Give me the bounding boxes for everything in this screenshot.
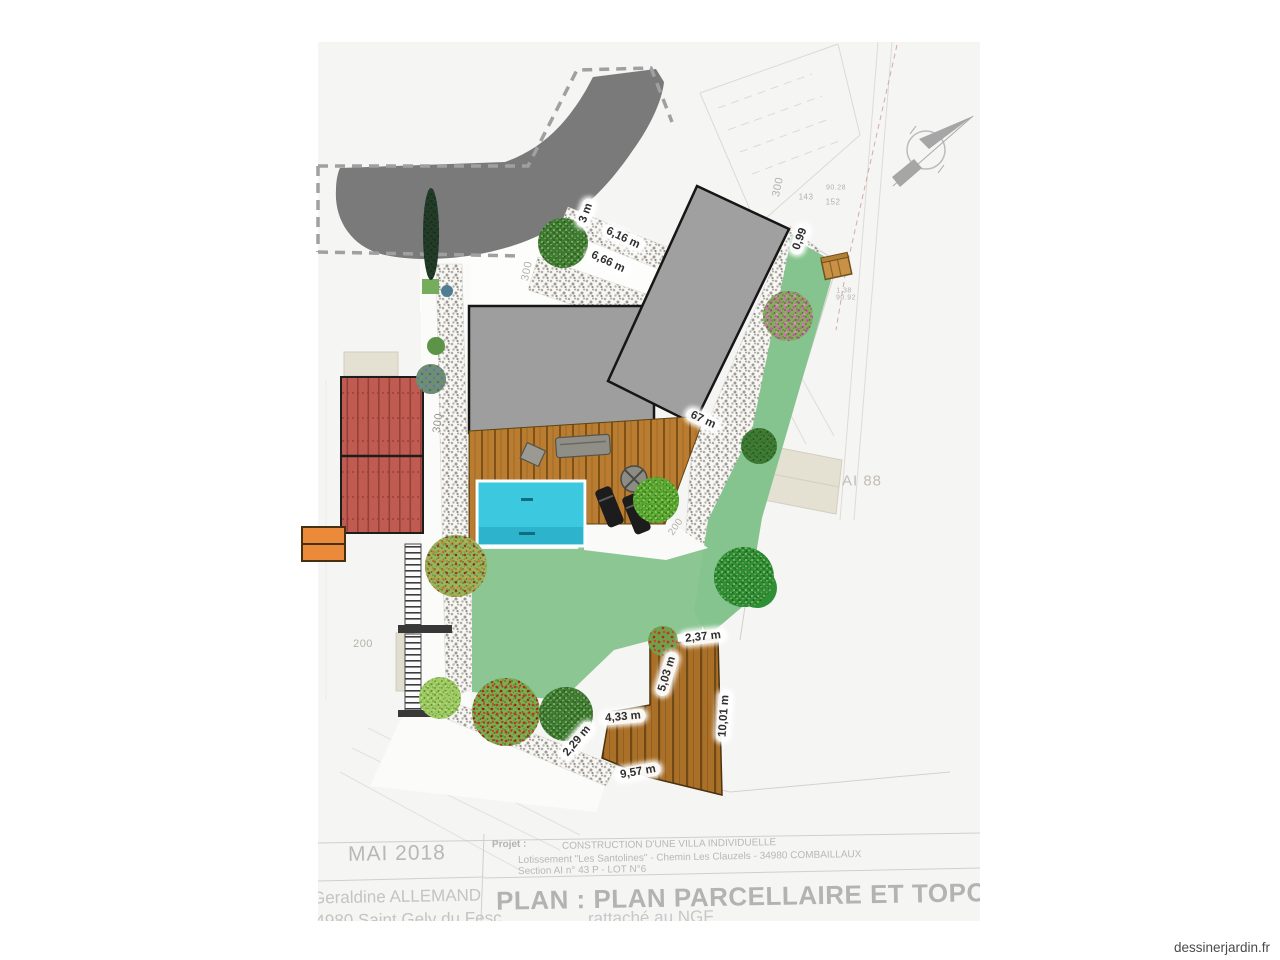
- project-label: Projet :: [492, 839, 527, 851]
- plan-date: MAI 2018: [348, 841, 446, 867]
- owner-name: Geraldine ALLEMAND: [318, 886, 481, 909]
- garden-plan-page: MAI 2018 Geraldine ALLEMAND 34980 Saint …: [0, 0, 1280, 960]
- project-line-3: Section AI n° 43 P - LOT N°6: [518, 864, 646, 877]
- project-line-1: CONSTRUCTION D'UNE VILLA INDIVIDUELLE: [562, 837, 776, 852]
- plan-subtitle: rattaché au NGF: [588, 907, 714, 921]
- watermark: dessinerjardin.fr: [1174, 940, 1270, 955]
- plan-title: PLAN : PLAN PARCELLAIRE ET TOPOGRAPHIQUE: [496, 874, 980, 916]
- parcel-label: AI 88: [842, 473, 882, 490]
- owner-city: 34980 Saint Gely du Fesc: [318, 908, 502, 921]
